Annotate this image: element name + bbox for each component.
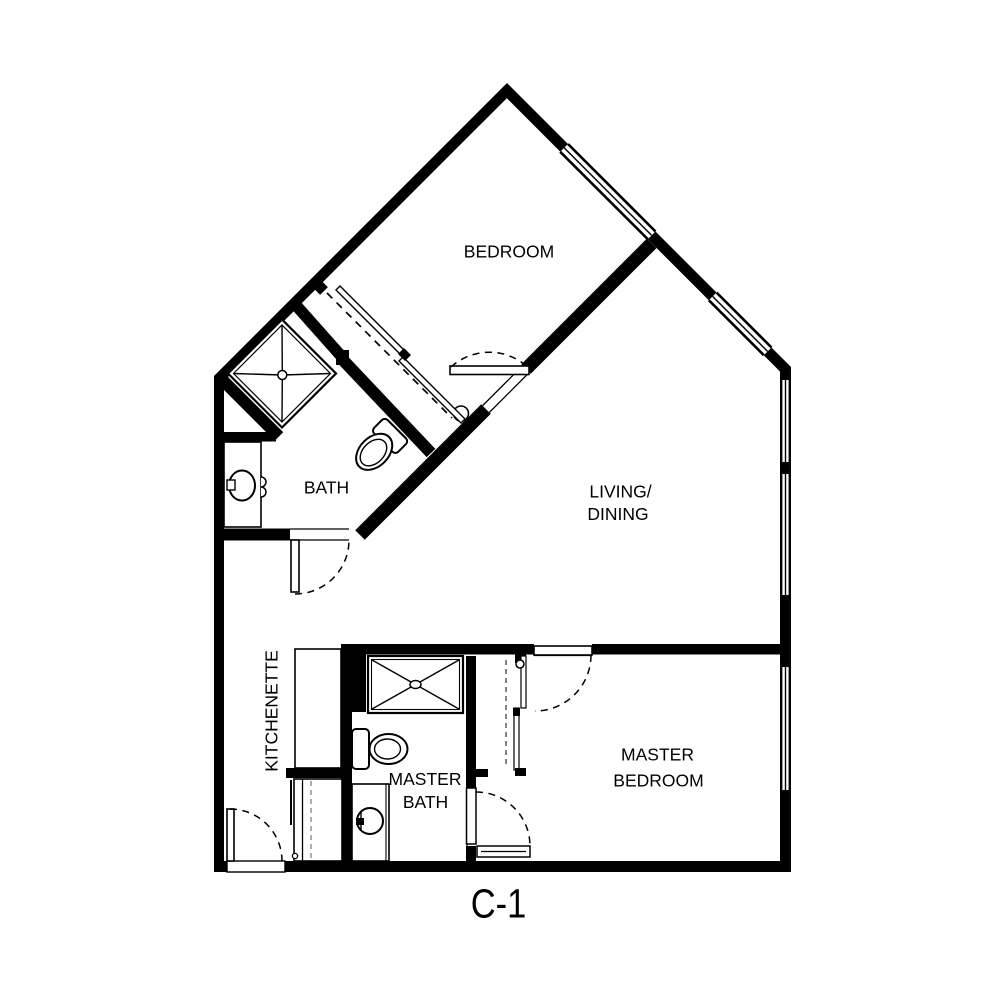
svg-text:KITCHENETTE: KITCHENETTE bbox=[262, 650, 282, 772]
svg-text:MASTER: MASTER bbox=[389, 769, 462, 789]
svg-text:LIVING/: LIVING/ bbox=[589, 482, 651, 502]
svg-text:BATH: BATH bbox=[403, 792, 448, 812]
svg-text:BATH: BATH bbox=[304, 478, 349, 498]
svg-text:BEDROOM: BEDROOM bbox=[464, 242, 554, 262]
svg-text:MASTER: MASTER bbox=[621, 745, 694, 765]
svg-text:DINING: DINING bbox=[587, 504, 648, 524]
svg-text:C-1: C-1 bbox=[471, 882, 527, 927]
svg-text:BEDROOM: BEDROOM bbox=[613, 771, 703, 791]
